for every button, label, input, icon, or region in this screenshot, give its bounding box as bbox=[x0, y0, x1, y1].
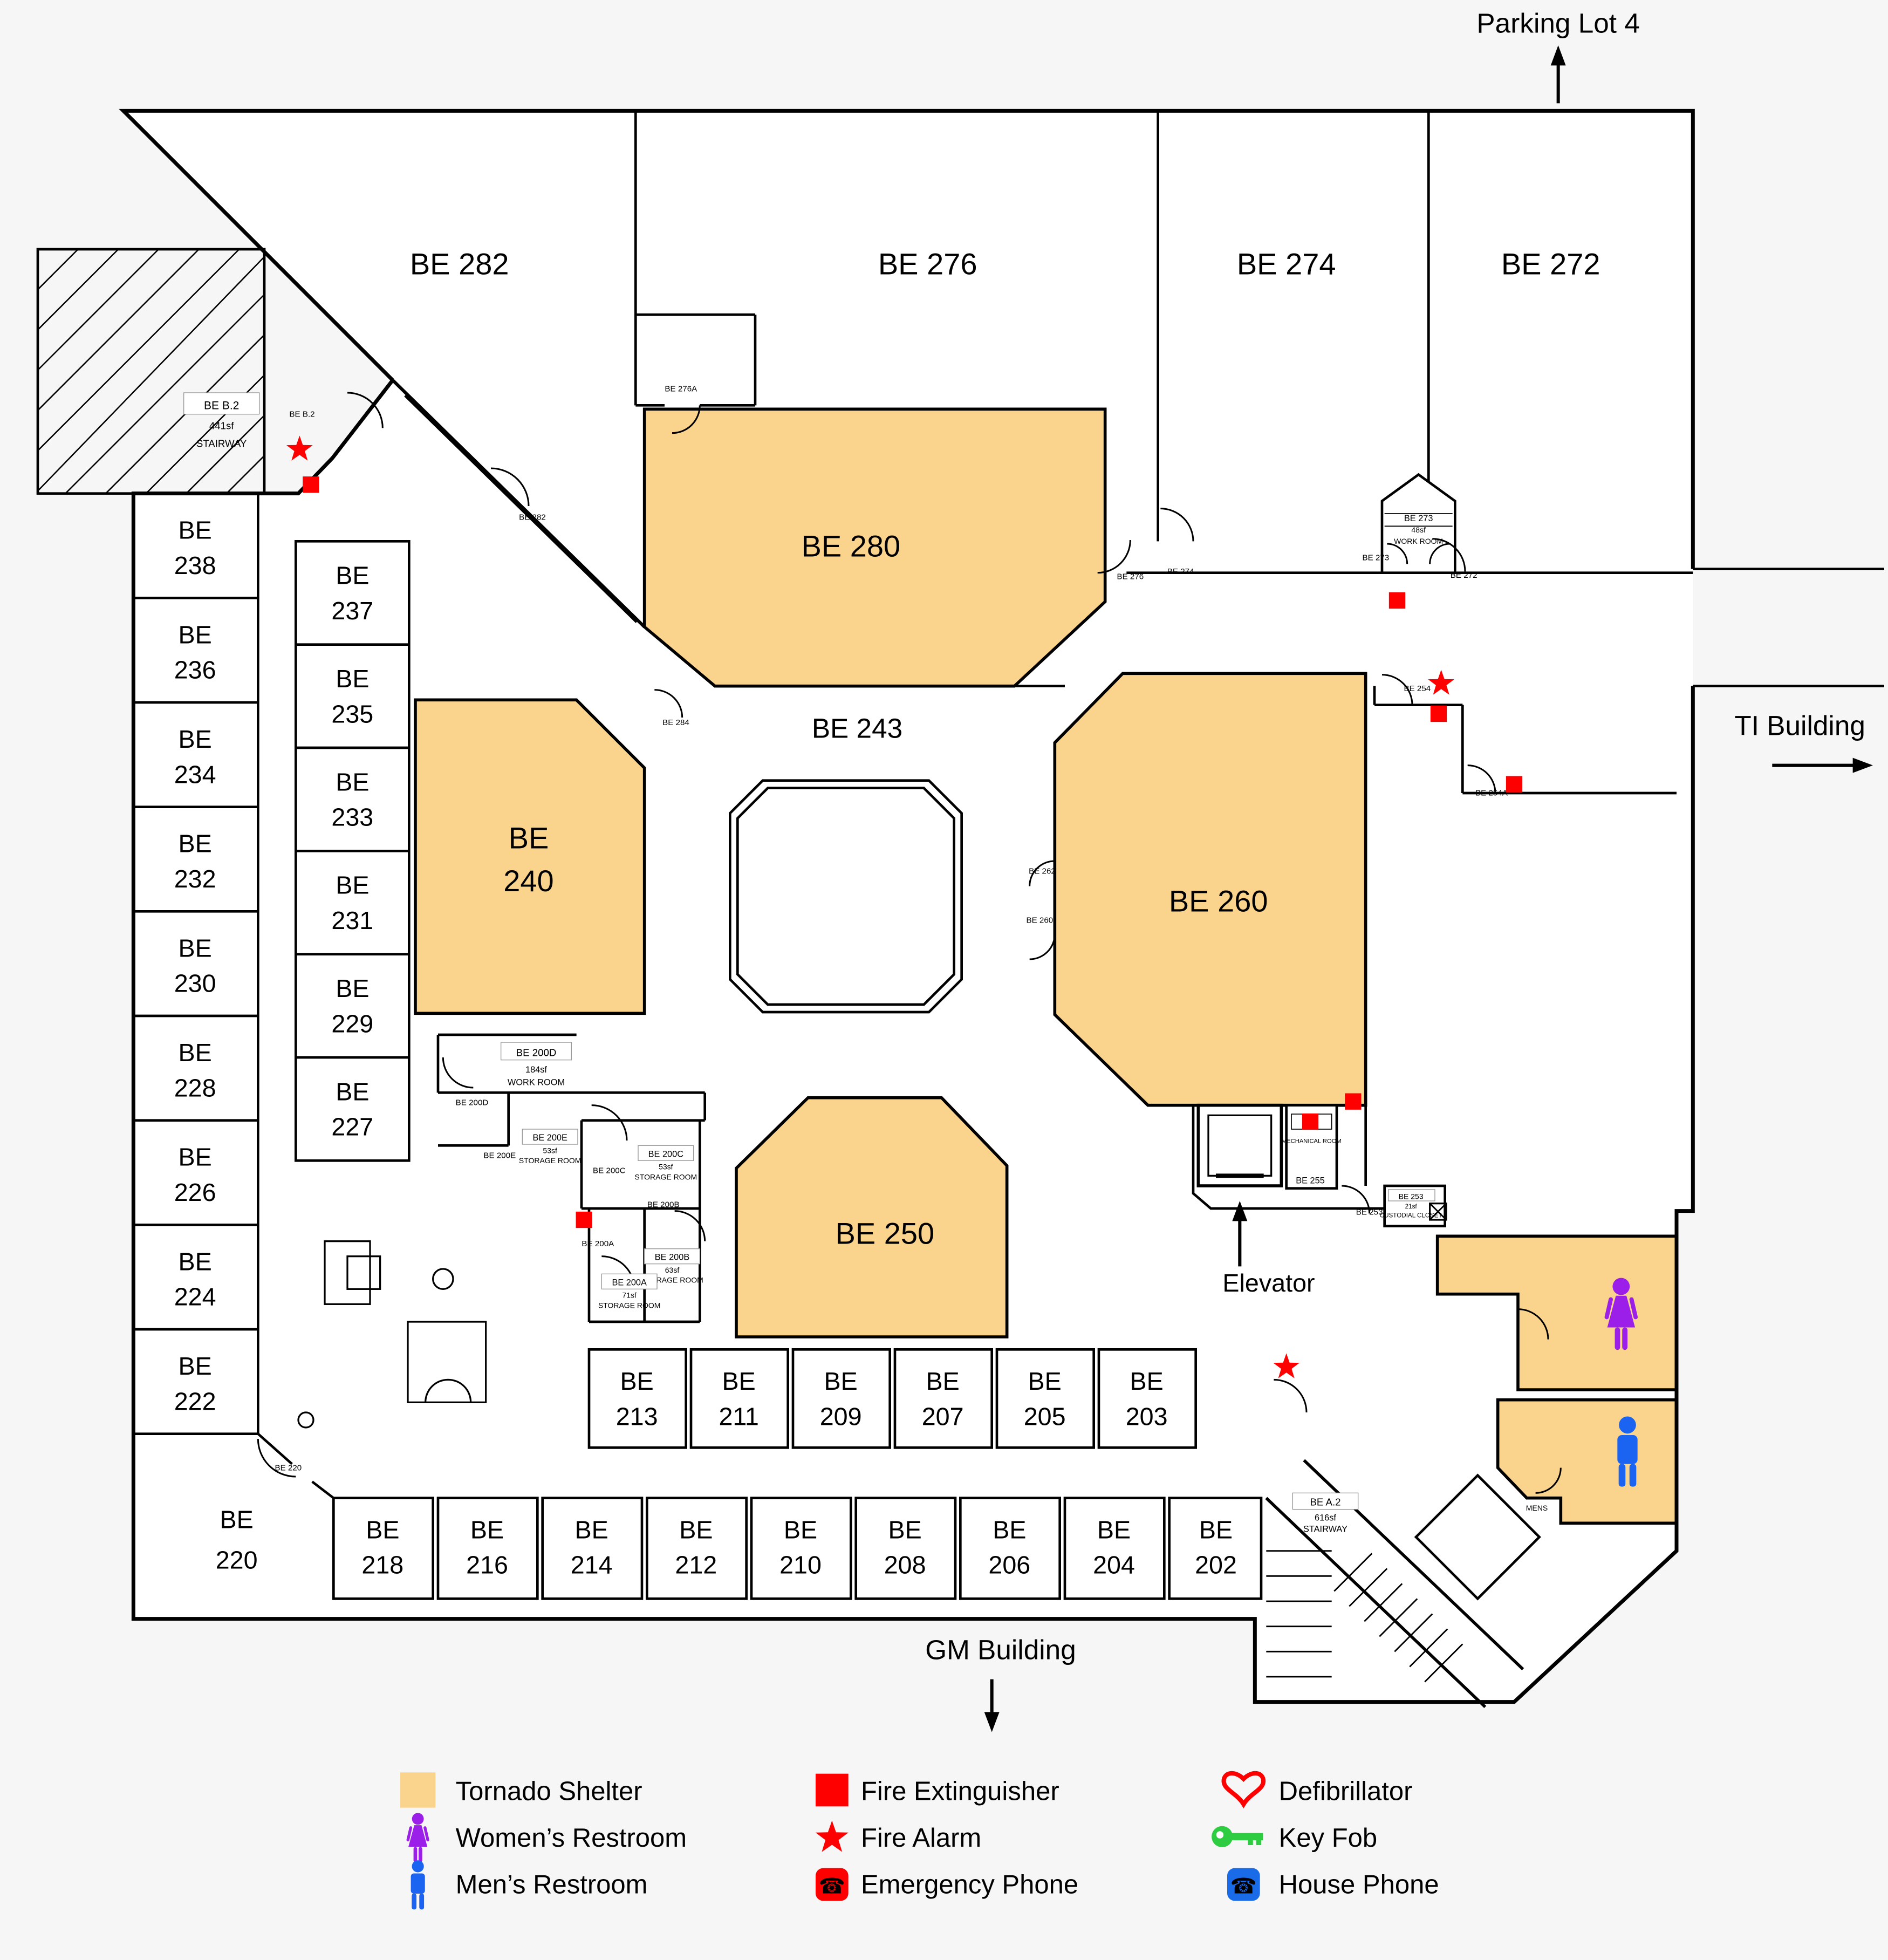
room-be240-shelter bbox=[415, 700, 645, 1013]
floor-plan: Parking Lot 4 TI Building GM Building El… bbox=[0, 0, 1888, 1960]
room-label-be272: BE 272 bbox=[1501, 247, 1600, 281]
parking-lot-label: Parking Lot 4 bbox=[1476, 8, 1639, 39]
be200e-type: STORAGE ROOM bbox=[519, 1156, 582, 1165]
be253-name: BE 253 bbox=[1399, 1192, 1424, 1201]
mechanical-room-number: BE 255 bbox=[1296, 1176, 1325, 1185]
bea2-type: STAIRWAY bbox=[1303, 1525, 1347, 1534]
door-label-be273: BE 273 bbox=[1362, 553, 1389, 562]
phone-glyph: ☎ bbox=[1230, 1874, 1257, 1898]
room-row-lower bbox=[333, 1498, 1261, 1599]
be200a-size: 71sf bbox=[622, 1291, 637, 1300]
tornado-shelter-swatch bbox=[400, 1772, 435, 1807]
fire-extinguisher-icon bbox=[303, 476, 319, 493]
be200c-size: 53sf bbox=[659, 1163, 673, 1171]
be200c-type: STORAGE ROOM bbox=[635, 1172, 697, 1181]
be200a-name: BE 200A bbox=[612, 1278, 647, 1287]
phone-glyph: ☎ bbox=[819, 1874, 845, 1898]
legend-key-fob: Key Fob bbox=[1279, 1824, 1377, 1853]
legend-tornado-shelter: Tornado Shelter bbox=[456, 1777, 642, 1806]
fire-extinguisher-icon bbox=[1389, 592, 1405, 609]
be200e-size: 53sf bbox=[543, 1146, 557, 1155]
door-label-be254: BE 254 bbox=[1404, 684, 1431, 693]
door-label-be220: BE 220 bbox=[275, 1463, 302, 1472]
be200e-name: BE 200E bbox=[532, 1133, 567, 1143]
bea2-size: 616sf bbox=[1315, 1513, 1336, 1523]
door-label-be200d: BE 200D bbox=[456, 1098, 489, 1108]
door-label-be253: BE 253 bbox=[1356, 1208, 1383, 1217]
beb2-type: STAIRWAY bbox=[196, 438, 247, 449]
gm-building-label: GM Building bbox=[925, 1634, 1076, 1665]
fire-extinguisher-icon bbox=[816, 1774, 849, 1807]
fire-extinguisher-icon bbox=[1302, 1114, 1318, 1130]
elevator-label: Elevator bbox=[1222, 1269, 1315, 1297]
room-label-be260: BE 260 bbox=[1169, 884, 1268, 918]
fire-extinguisher-icon bbox=[1345, 1094, 1361, 1110]
room-label-be280: BE 280 bbox=[801, 529, 900, 563]
door-label-beb2: BE B.2 bbox=[289, 409, 314, 419]
be273-size: 48sf bbox=[1411, 525, 1426, 534]
door-label-be260: BE 260 bbox=[1026, 916, 1053, 925]
be273-name: BE 273 bbox=[1404, 514, 1433, 523]
bea2-name: BE A.2 bbox=[1310, 1497, 1340, 1508]
mens-label: MENS bbox=[1526, 1504, 1548, 1512]
door-label-be284: BE 284 bbox=[662, 718, 689, 727]
legend-mens-restroom: Men’s Restroom bbox=[456, 1870, 648, 1899]
door-label-be272: BE 272 bbox=[1451, 571, 1477, 580]
ti-building-label: TI Building bbox=[1734, 711, 1865, 741]
be253-size: 21sf bbox=[1405, 1203, 1418, 1210]
door-label-be276a: BE 276A bbox=[665, 385, 697, 394]
fire-extinguisher-icon bbox=[576, 1212, 592, 1228]
door-label-be274: BE 274 bbox=[1167, 567, 1194, 576]
be200c-name: BE 200C bbox=[648, 1149, 684, 1159]
house-phone-icon: ☎ bbox=[1227, 1868, 1260, 1901]
door-label-be200b: BE 200B bbox=[647, 1200, 680, 1210]
room-label-be274: BE 274 bbox=[1237, 247, 1336, 281]
beb2-name: BE B.2 bbox=[204, 399, 239, 412]
legend-emergency-phone: Emergency Phone bbox=[861, 1870, 1078, 1899]
legend-fire-alarm: Fire Alarm bbox=[861, 1824, 981, 1853]
be200d-size: 184sf bbox=[525, 1065, 547, 1075]
mechanical-room-name: MECHANICAL ROOM bbox=[1282, 1138, 1342, 1145]
room-label-be250: BE 250 bbox=[835, 1216, 934, 1250]
beb2-size: 441sf bbox=[209, 420, 234, 432]
fire-extinguisher-icon bbox=[1431, 706, 1447, 722]
be253-type: CUSTODIAL CLOSET bbox=[1380, 1212, 1442, 1219]
door-label-be254a: BE 254A bbox=[1475, 789, 1508, 798]
door-label-be200e: BE 200E bbox=[483, 1151, 516, 1160]
be200d-name: BE 200D bbox=[516, 1047, 557, 1058]
legend-house-phone: House Phone bbox=[1279, 1870, 1439, 1899]
be200a-type: STORAGE ROOM bbox=[598, 1301, 661, 1309]
door-label-be282: BE 282 bbox=[519, 513, 546, 522]
room-label-be276: BE 276 bbox=[878, 247, 977, 281]
door-label-be276: BE 276 bbox=[1117, 572, 1144, 581]
fire-extinguisher-icon bbox=[1506, 776, 1522, 793]
legend: Tornado Shelter Women’s Restroom Men’s R… bbox=[400, 1772, 1439, 1909]
door-label-be262: BE 262 bbox=[1029, 866, 1056, 876]
room-label-be282: BE 282 bbox=[410, 247, 509, 281]
legend-womens-restroom: Women’s Restroom bbox=[456, 1824, 687, 1853]
door-label-be200a: BE 200A bbox=[582, 1239, 614, 1248]
be200b-name: BE 200B bbox=[655, 1253, 690, 1262]
be200d-type: WORK ROOM bbox=[508, 1077, 565, 1087]
legend-defibrillator: Defibrillator bbox=[1279, 1777, 1413, 1806]
emergency-phone-icon: ☎ bbox=[816, 1868, 849, 1901]
legend-fire-extinguisher: Fire Extinguisher bbox=[861, 1777, 1059, 1806]
be200b-size: 63sf bbox=[665, 1266, 680, 1274]
room-label-be243: BE 243 bbox=[812, 713, 902, 743]
be273-type: WORK ROOM bbox=[1394, 537, 1443, 545]
door-label-be200c: BE 200C bbox=[593, 1166, 626, 1176]
